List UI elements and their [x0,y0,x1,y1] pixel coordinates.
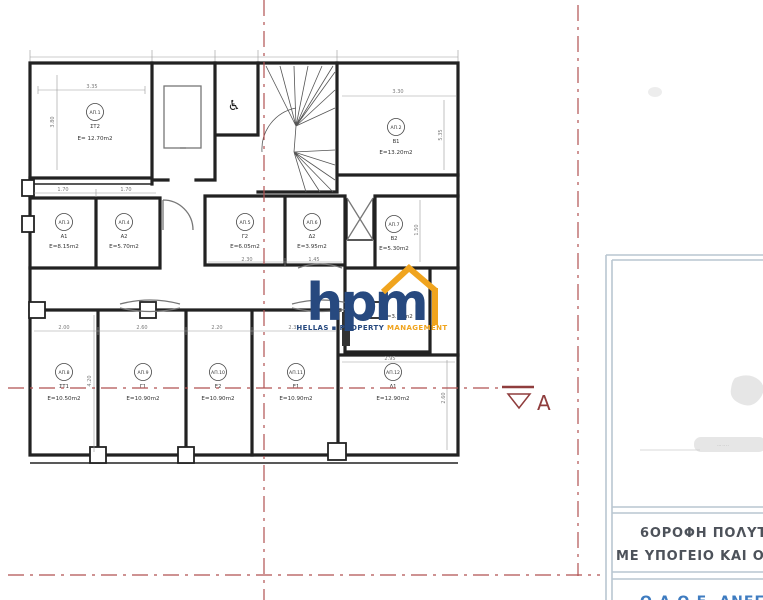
svg-text:E=10.90m2: E=10.90m2 [201,396,234,402]
svg-text:Δ1: Δ1 [390,384,397,390]
elevator [164,86,201,148]
room-label: ΑΠ.12 Δ1E=12.90m2 [376,364,409,403]
dim-label: 2.00 [58,325,69,331]
room-labels: ΑΠ.1 ΣΤ2E= 12.70m2 ΑΠ.2 Β1E=13.20m2 ΑΠ.3… [47,104,412,403]
svg-text:E=12.90m2: E=12.90m2 [376,396,409,402]
dim-label: 3.80 [50,116,56,127]
svg-text:ΣΤ2: ΣΤ2 [90,124,100,130]
room-label: ΑΠ.11 Ε1E=10.90m2 [279,364,312,403]
panel-thumbnail-blob [731,375,763,405]
dim-label: 2.30 [241,257,252,263]
svg-text:ΑΠ.9: ΑΠ.9 [138,370,149,376]
dim-label: 2.95 [384,356,395,362]
dim-label: 2.60 [441,392,447,403]
dim-label: 3.35 [86,84,97,90]
room-label: ΑΠ.6 Δ2E=3.95m2 [297,214,327,251]
title-block-panel: ··· ·· ·· 6ΟΡΟΦΗ ΠΟΛΥΤΕ ΜΕ ΥΠΟΓΕΙΟ ΚΑΙ Ο… [606,255,763,600]
svg-text:ΑΠ.10: ΑΠ.10 [211,370,225,376]
svg-text:Β2: Β2 [391,236,398,242]
dim-label: 4.20 [87,375,93,386]
dim-label: 1.45 [308,257,319,263]
duct-shaft [347,198,373,240]
dim-label: 1.50 [414,224,420,235]
wc-room: ♿ [228,98,241,114]
panel-title-line1: 6ΟΡΟΦΗ ΠΟΛΥΤΕ [640,526,763,541]
room-label: ΑΠ.4 Α2E=5.70m2 [109,214,139,251]
svg-text:E=3.95m2: E=3.95m2 [297,244,327,250]
dim-label: 1.70 [57,187,68,193]
room-label: ΑΠ.8 ΣΤ1E=10.50m2 [47,364,80,403]
dim-label: 2.60 [136,325,147,331]
svg-text:ΑΠ.11: ΑΠ.11 [289,370,303,376]
svg-text:ΑΠ.6: ΑΠ.6 [307,220,318,226]
svg-text:E=10.90m2: E=10.90m2 [126,396,159,402]
svg-text:E=10.90m2: E=10.90m2 [279,396,312,402]
drawing-sheet: ♿ 3.35 1.70 1.70 2.30 1.45 3.30 2.00 2.6… [0,0,763,600]
panel-title-line2: ΜΕ ΥΠΟΓΕΙΟ ΚΑΙ Ο [616,549,763,564]
svg-text:Δ2: Δ2 [309,234,316,240]
svg-text:E=13.20m2: E=13.20m2 [379,150,412,156]
svg-text:Α1: Α1 [61,234,68,240]
room-label: ΑΠ.1 ΣΤ2E= 12.70m2 [77,104,112,143]
svg-text:Β1: Β1 [393,139,400,145]
section-marker-letter: A [537,391,551,415]
panel-footer-partial: Ο.Α.Ο.Ε. ΑΝΕΓΕΡΣΗ [640,594,763,600]
svg-text:ΑΠ.3: ΑΠ.3 [59,220,70,226]
svg-text:Α2: Α2 [121,234,128,240]
svg-text:ΑΠ.1: ΑΠ.1 [90,110,101,116]
dim-label: 1.70 [120,187,131,193]
dim-label: 2.20 [211,325,222,331]
dim-label: 3.30 [392,89,403,95]
room-label: ΑΠ.3 Α1E=8.15m2 [49,214,79,251]
svg-text:ΑΠ.2: ΑΠ.2 [391,125,402,131]
wheelchair-icon: ♿ [228,98,241,114]
dim-label: 5.35 [438,129,444,140]
svg-text:E=5.30m2: E=5.30m2 [379,246,409,252]
gray-smudge [648,87,662,97]
svg-text:Ε2: Ε2 [215,384,222,390]
svg-text:E=8.15m2: E=8.15m2 [49,244,79,250]
svg-text:Γ1: Γ1 [140,384,146,390]
svg-text:E=10.50m2: E=10.50m2 [47,396,80,402]
staircase [262,66,335,192]
svg-text:E=5.70m2: E=5.70m2 [109,244,139,250]
svg-text:Ε1: Ε1 [293,384,300,390]
svg-text:ΑΠ.5: ΑΠ.5 [240,220,251,226]
svg-text:ΑΠ.8: ΑΠ.8 [59,370,70,376]
room-label: ΑΠ.2 Β1E=13.20m2 [379,119,412,157]
svg-text:E=6.05m2: E=6.05m2 [230,244,260,250]
svg-text:E= 12.70m2: E= 12.70m2 [77,136,112,142]
svg-text:Γ2: Γ2 [242,234,248,240]
panel-scale-dots: ··· ·· ·· [717,443,728,448]
room-label: ΑΠ.10 Ε2E=10.90m2 [201,364,234,403]
hpm-logo-tagline: HELLAS ▪ PROPERTY MANAGEMENT [296,324,447,332]
floor-plan-canvas: ♿ 3.35 1.70 1.70 2.30 1.45 3.30 2.00 2.6… [0,0,763,600]
svg-text:ΑΠ.4: ΑΠ.4 [119,220,130,226]
svg-text:ΑΠ.7: ΑΠ.7 [389,222,400,228]
room-label: ΑΠ.7 Β2E=5.30m2 [379,216,409,253]
hpm-logo: hpm HELLAS ▪ PROPERTY MANAGEMENT [296,268,447,333]
section-marker-a: A [502,387,551,415]
svg-text:ΣΤ1: ΣΤ1 [59,384,69,390]
room-label: ΑΠ.9 Γ1E=10.90m2 [126,364,159,403]
svg-text:ΑΠ.12: ΑΠ.12 [386,370,400,376]
room-label: ΑΠ.5 Γ2E=6.05m2 [230,214,260,251]
